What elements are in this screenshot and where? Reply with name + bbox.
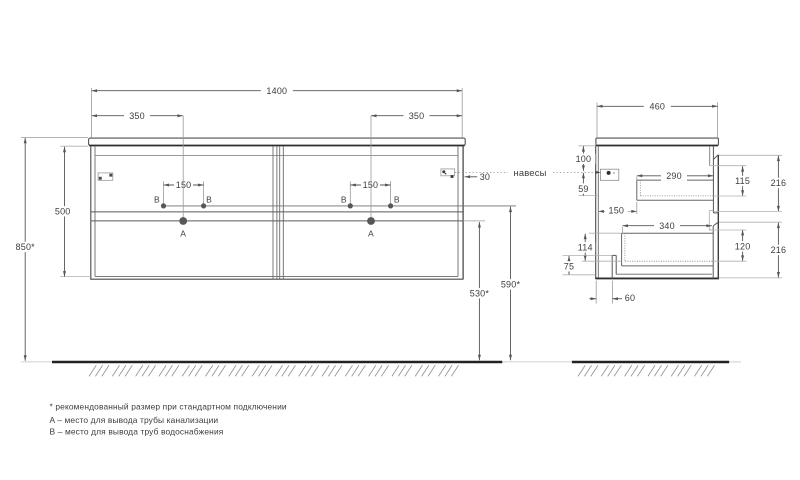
svg-text:216: 216 [771, 178, 787, 188]
svg-text:150: 150 [363, 180, 379, 190]
svg-text:A: A [368, 228, 374, 238]
svg-text:120: 120 [735, 242, 751, 252]
svg-text:850*: 850* [16, 242, 36, 252]
svg-text:75: 75 [564, 262, 574, 272]
svg-text:114: 114 [578, 243, 593, 253]
svg-text:530*: 530* [470, 288, 490, 298]
svg-text:59: 59 [578, 184, 588, 194]
svg-text:150: 150 [608, 206, 624, 216]
svg-text:навесы: навесы [513, 167, 546, 178]
svg-text:B: B [394, 194, 400, 204]
svg-text:460: 460 [649, 102, 665, 112]
svg-text:216: 216 [771, 245, 787, 255]
svg-text:340: 340 [659, 221, 675, 231]
svg-text:A – место для вывода трубы кан: A – место для вывода трубы канализации [50, 415, 219, 425]
svg-text:B – место для вывода труб водо: B – место для вывода труб водоснабжения [50, 427, 224, 437]
svg-text:115: 115 [735, 176, 750, 186]
svg-text:A: A [180, 228, 186, 238]
svg-text:350: 350 [129, 111, 145, 121]
svg-text:30: 30 [480, 172, 490, 182]
svg-text:500: 500 [55, 207, 71, 217]
svg-text:1400: 1400 [266, 86, 287, 96]
svg-text:60: 60 [625, 293, 635, 303]
svg-text:100: 100 [576, 154, 592, 164]
svg-text:B: B [154, 194, 160, 204]
svg-text:* рекомендованный размер при с: * рекомендованный размер при стандартном… [50, 402, 287, 412]
svg-text:350: 350 [409, 111, 425, 121]
svg-text:B: B [341, 194, 347, 204]
svg-text:290: 290 [666, 171, 682, 181]
svg-text:590*: 590* [501, 280, 521, 290]
svg-text:B: B [206, 194, 212, 204]
